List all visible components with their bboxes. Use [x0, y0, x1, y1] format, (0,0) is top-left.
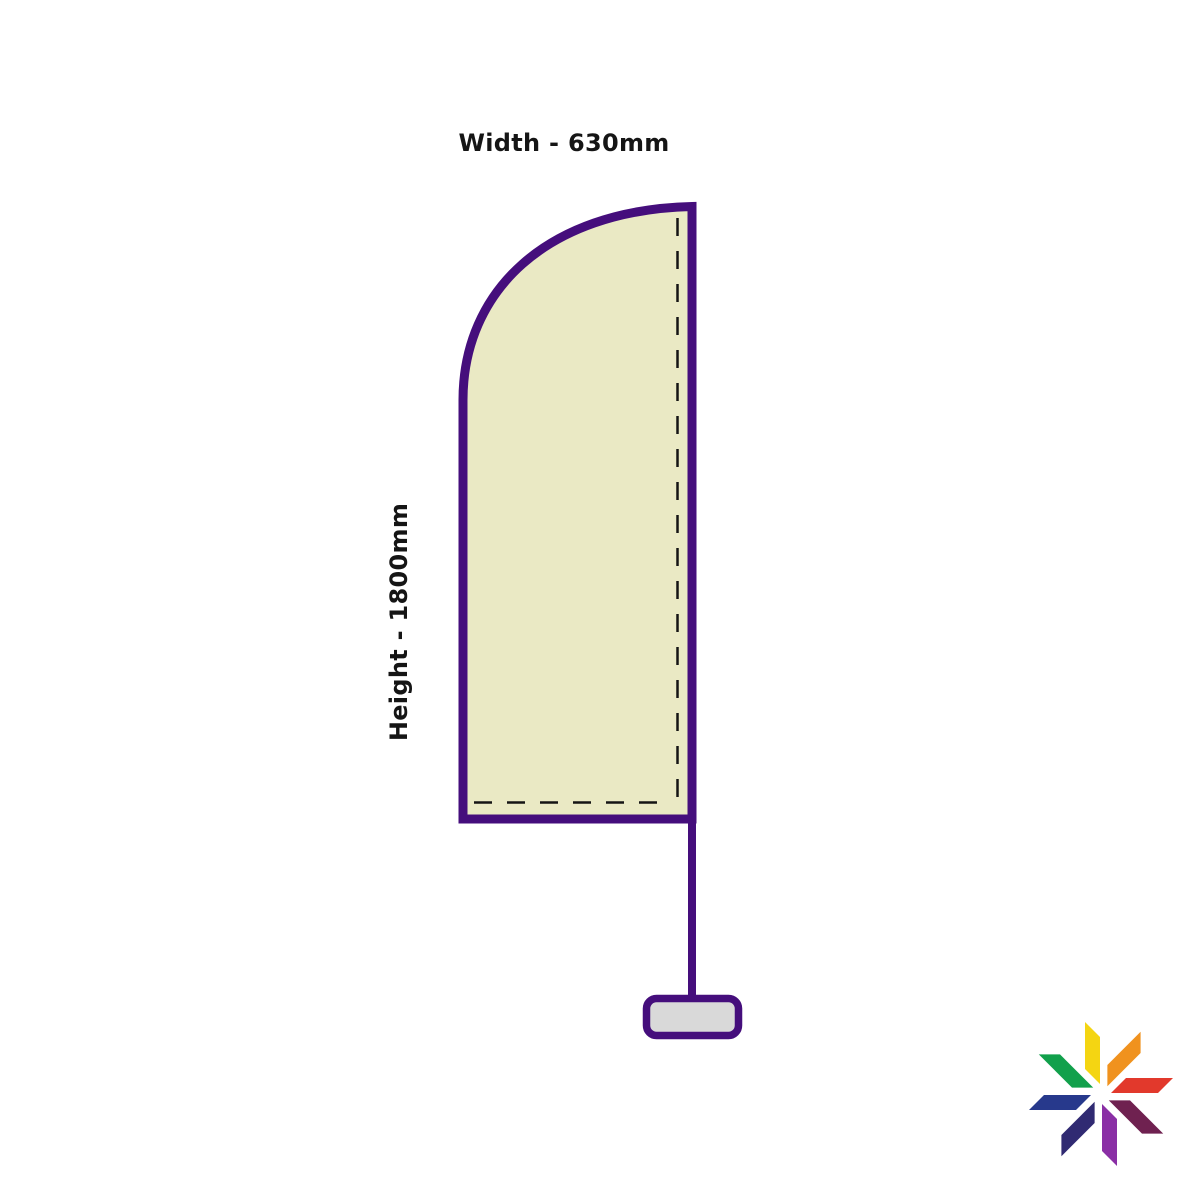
logo-petal-bottom	[1102, 1104, 1117, 1166]
logo-petal-top	[1085, 1022, 1100, 1084]
flag-base	[647, 999, 739, 1036]
feather-flag-diagram	[0, 0, 1200, 1193]
logo-petal-left	[1029, 1095, 1091, 1110]
logo-petal-right	[1111, 1078, 1173, 1093]
flag-banner	[463, 207, 692, 820]
diagram-canvas: Width - 630mm Height - 1800mm	[0, 0, 1200, 1193]
pinwheel-logo-icon	[1029, 1022, 1173, 1166]
